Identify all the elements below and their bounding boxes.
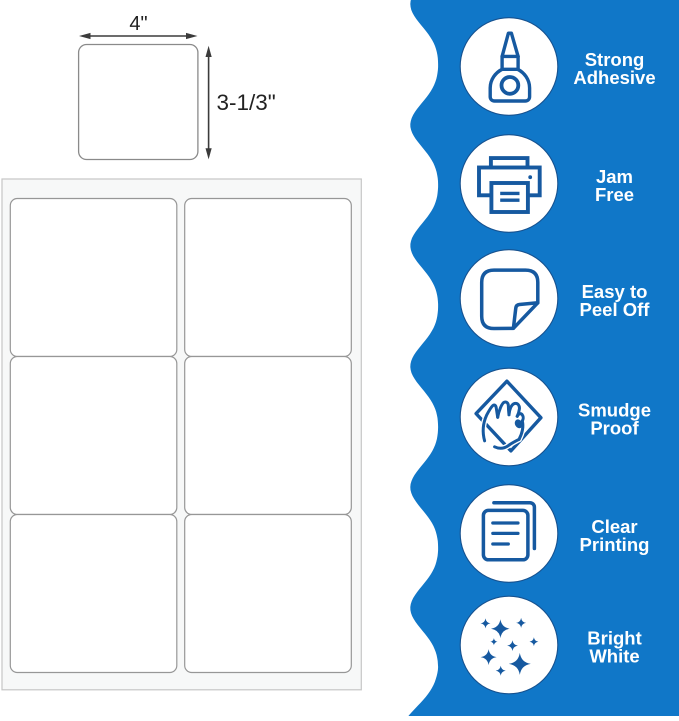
svg-text:3-1/3": 3-1/3" <box>217 90 276 115</box>
svg-text:Peel Off: Peel Off <box>580 299 651 320</box>
svg-text:Printing: Printing <box>580 534 650 555</box>
svg-text:4": 4" <box>129 13 147 35</box>
svg-text:Free: Free <box>595 184 634 205</box>
svg-text:Proof: Proof <box>590 418 639 439</box>
svg-text:White: White <box>589 646 639 667</box>
svg-text:Adhesive: Adhesive <box>573 67 655 88</box>
